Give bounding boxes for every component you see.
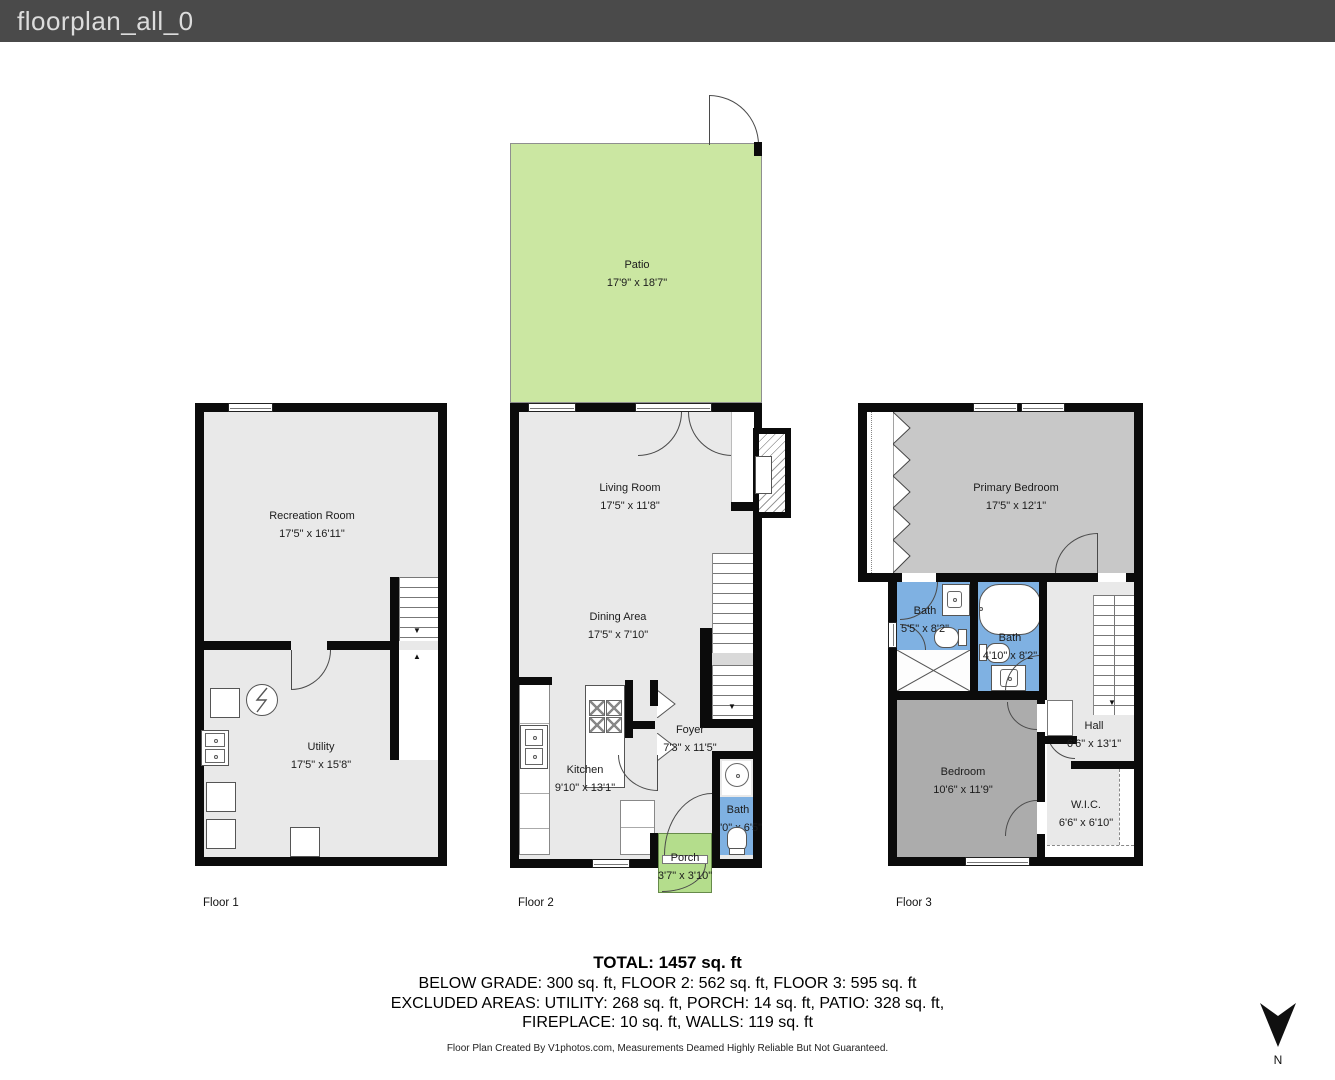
wall <box>625 680 633 738</box>
sink-basin <box>205 749 225 763</box>
wall <box>625 721 655 729</box>
wall <box>867 573 902 582</box>
compass: N <box>1258 1000 1298 1067</box>
summary-excluded2: FIREPLACE: 10 sq. ft, WALLS: 119 sq. ft <box>0 1013 1335 1033</box>
window <box>528 403 576 412</box>
room-label-porch: Porch 3'7" x 3'10" <box>658 849 712 885</box>
stairs <box>1093 595 1134 715</box>
window <box>888 622 897 648</box>
wall <box>897 691 1047 700</box>
window-title: floorplan_all_0 <box>17 0 194 42</box>
area-summary: TOTAL: 1457 sq. ft BELOW GRADE: 300 sq. … <box>0 952 1335 1054</box>
electrical-panel-icon <box>245 683 279 717</box>
gate-door-arc <box>709 95 759 145</box>
toilet-tank <box>729 848 745 855</box>
north-arrow-icon <box>1259 1000 1297 1048</box>
wall <box>1134 403 1143 866</box>
window <box>973 403 1018 412</box>
wall <box>970 582 978 700</box>
wall <box>936 573 1098 582</box>
wall <box>754 142 762 156</box>
floor2-plan: ▼ <box>510 403 762 868</box>
chimney-recess <box>731 412 754 502</box>
burner-icon <box>589 717 605 733</box>
appliance-box <box>206 819 236 849</box>
bathtub-icon <box>979 584 1041 635</box>
room-label-hall: Hall 6'6" x 13'1" <box>1067 717 1121 753</box>
wall <box>1037 732 1045 802</box>
firebox <box>755 456 772 494</box>
room-label-kitchen: Kitchen 9'10" x 13'1" <box>555 761 615 797</box>
wall <box>858 403 867 582</box>
room-label-bath-b: Bath 4'10" x 8'2" <box>983 629 1037 665</box>
room-label-bedroom: Bedroom 10'6" x 11'9" <box>933 763 993 799</box>
wall <box>390 577 399 760</box>
room-label-dining-area: Dining Area 17'5" x 7'10" <box>588 608 648 644</box>
wic-shelf <box>1119 769 1134 845</box>
wall <box>650 680 658 706</box>
summary-excluded: EXCLUDED AREAS: UTILITY: 268 sq. ft, POR… <box>0 994 1335 1014</box>
sink-icon <box>201 730 229 766</box>
window <box>228 403 273 412</box>
floor2-label: Floor 2 <box>518 897 554 909</box>
sliding-door <box>635 403 712 412</box>
credit-line: Floor Plan Created By V1photos.com, Meas… <box>0 1043 1335 1054</box>
wall <box>650 833 658 863</box>
appliance-box <box>210 688 240 718</box>
summary-total: TOTAL: 1457 sq. ft <box>0 952 1335 974</box>
stairs-landing <box>399 650 438 760</box>
room-label-primary-bedroom: Primary Bedroom 17'5" x 12'1" <box>973 479 1059 515</box>
wall <box>712 833 720 863</box>
fireplace <box>753 428 791 518</box>
room-label-recreation-room: Recreation Room 17'5" x 16'11" <box>269 507 355 543</box>
room-label-bath-a: Bath 5'5" x 8'2" <box>901 602 949 638</box>
wall <box>519 677 552 685</box>
floor3-plan: Primary Bedroom 17'5" x 12'1" Bath 5'5" … <box>858 403 1143 866</box>
floorplan-sheet: floorplan_all_0 ▼ ▲ Recreation Room 17'5… <box>0 0 1335 1080</box>
window <box>592 859 630 868</box>
appliance-box <box>206 782 236 812</box>
room-label-utility: Utility 17'5" x 15'8" <box>291 738 351 774</box>
wall <box>700 628 712 719</box>
door-threshold <box>1098 573 1126 582</box>
shower-x <box>897 650 970 691</box>
wall <box>327 641 390 650</box>
stair-arrow-up-icon: ▲ <box>413 653 421 661</box>
floor1-label: Floor 1 <box>203 897 239 909</box>
window <box>1021 403 1065 412</box>
door-threshold <box>1037 704 1045 732</box>
room-label-patio: Patio 17'9" x 18'7" <box>607 256 667 292</box>
toilet-tank <box>958 629 967 646</box>
window <box>965 857 1030 866</box>
wall <box>1071 761 1134 769</box>
stair-arrow-down-icon: ▼ <box>1108 699 1116 707</box>
stair-landing <box>712 653 753 665</box>
stair-arrow-down-icon: ▼ <box>413 627 421 635</box>
burner-icon <box>606 717 622 733</box>
door-threshold <box>902 573 936 582</box>
wic-shelf <box>1047 845 1134 857</box>
stair-arrow-down-icon: ▼ <box>728 703 736 711</box>
floor3-label: Floor 3 <box>896 897 932 909</box>
room-label-wic: W.I.C. 6'6" x 6'10" <box>1059 796 1113 832</box>
north-label: N <box>1258 1053 1298 1067</box>
wall <box>1037 834 1045 857</box>
bifold-door-icon <box>657 690 677 718</box>
app-header: floorplan_all_0 <box>0 0 1335 42</box>
wall <box>1126 573 1134 582</box>
wall <box>204 641 291 650</box>
sink-basin <box>205 733 225 747</box>
closet-zigzag <box>893 412 911 573</box>
patio-plan: Patio 17'9" x 18'7" <box>510 143 762 403</box>
stairs <box>712 553 753 653</box>
wall <box>1039 582 1047 700</box>
floor1-plan: ▼ ▲ Recreation Room 17'5" x 16'11" Utili… <box>195 403 447 866</box>
burner-icon <box>606 700 622 716</box>
room-label-living-room: Living Room 17'5" x 11'8" <box>599 479 660 515</box>
door-threshold <box>1037 802 1045 834</box>
closet-rod-dashed <box>871 412 872 573</box>
room-label-foyer: Foyer 7'3" x 11'5" <box>663 721 716 757</box>
bath-sink-icon <box>722 761 751 795</box>
summary-floors: BELOW GRADE: 300 sq. ft, FLOOR 2: 562 sq… <box>0 974 1335 994</box>
water-heater-box <box>290 827 320 857</box>
kitchen-sink-icon <box>520 725 548 769</box>
burner-icon <box>589 700 605 716</box>
